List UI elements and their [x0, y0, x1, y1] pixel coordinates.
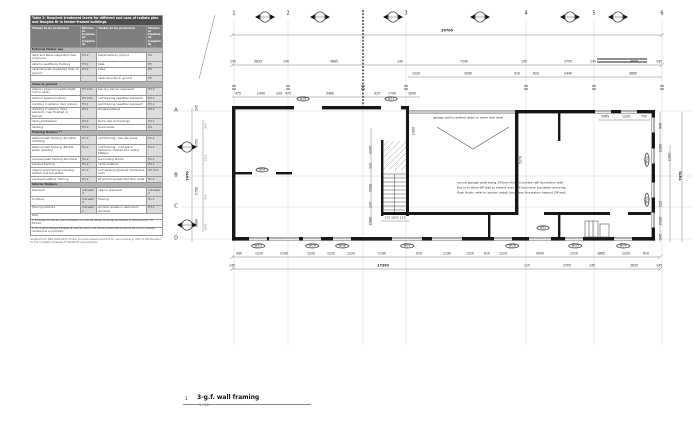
- dim-label: 115: [524, 264, 530, 267]
- note-sip-1: secure garage walls being 145mm thick. C…: [457, 182, 563, 185]
- view-number: 1: [185, 397, 188, 402]
- dim-label: 1220: [347, 252, 355, 255]
- dim-label: 145: [229, 264, 235, 267]
- dim-label: 1865: [597, 252, 605, 255]
- dim-label: 2105: [369, 146, 372, 154]
- dim-label: 990: [236, 252, 242, 255]
- dim-label: 1165: [668, 153, 671, 161]
- drawing-sheet: Table 2: Required treatment levels for d…: [0, 0, 700, 423]
- section-marker-icon: [383, 12, 403, 22]
- dim-label: 1400: [412, 127, 415, 135]
- dim-label: 2440: [564, 72, 572, 75]
- dim-label: 140: [283, 60, 289, 63]
- dim-label: 3460: [326, 92, 334, 95]
- note-sip-2: this is to allow SIP wall to extend over…: [457, 187, 565, 190]
- dim-label: 910: [514, 72, 520, 75]
- dim-label: 4665: [330, 60, 338, 63]
- section-marker-icon: [310, 12, 330, 22]
- dim-label: 475: [235, 92, 241, 95]
- dim-label: 3090: [464, 72, 472, 75]
- dim-label: 1220: [622, 115, 630, 118]
- window-tag: W08: [335, 243, 349, 248]
- garage-slope-lines: [437, 127, 509, 149]
- dim-label: 600: [205, 194, 208, 199]
- dim-label: 750: [641, 115, 647, 118]
- dim-label: 940: [659, 123, 662, 129]
- dim-label: 1220: [499, 252, 507, 255]
- dim-label: 1790: [388, 92, 396, 95]
- dim-label: 3635: [630, 60, 638, 63]
- view-title: 3-g.f. wall framing: [197, 394, 259, 401]
- section-marker-icon: [470, 12, 490, 22]
- dim-label: 2190: [378, 252, 386, 255]
- window-tag: W04: [616, 243, 630, 248]
- dim-label: 1100: [659, 144, 662, 152]
- dim-label: 1220: [622, 252, 630, 255]
- walls: [232, 106, 655, 241]
- fixtures: [585, 221, 609, 237]
- grid-lines: [182, 20, 692, 345]
- dim-label: 3635: [630, 264, 638, 267]
- dim-label: 910: [416, 252, 422, 255]
- dim-overall-width: 24700: [441, 29, 453, 32]
- grid-col-1: 1: [232, 12, 235, 17]
- dim-label: 145: [590, 60, 596, 63]
- dim-label: 7470: [679, 171, 682, 180]
- dim-label: 7470: [186, 171, 189, 180]
- window-tag: W09: [305, 243, 319, 248]
- dim-label: 145: [656, 60, 662, 63]
- dim-label: 610: [484, 252, 490, 255]
- grid-col-3: 3: [404, 12, 407, 17]
- dim-label: 7240: [460, 60, 468, 63]
- dim-label: 1220: [412, 72, 420, 75]
- dim-label: 115: [369, 202, 372, 208]
- dim-label: 145: [230, 60, 236, 63]
- section-marker-icon: [608, 12, 628, 22]
- dim-label: 2440: [257, 92, 265, 95]
- window-tag: W07: [400, 243, 414, 248]
- note-sip-3: flush finish; refer to section detail; b…: [457, 192, 566, 195]
- dimension-lines: [192, 33, 682, 271]
- grid-row-a: A: [174, 109, 177, 114]
- dim-label: 145: [659, 234, 662, 240]
- view-title-underline: [183, 404, 311, 405]
- window-tag: W10: [251, 243, 265, 248]
- dim-label: 4000: [536, 252, 544, 255]
- dim-label: 1495: [205, 223, 208, 230]
- dim-label: 610: [643, 252, 649, 255]
- dim-label: 2190: [443, 252, 451, 255]
- dim-label: 145: [656, 264, 662, 267]
- bottom-windows: [249, 236, 632, 241]
- window-tag: W06: [505, 243, 519, 248]
- dim-label: 3705: [195, 139, 198, 147]
- dim-label: 3500: [369, 184, 372, 192]
- dim-label: 1065: [601, 115, 609, 118]
- dim-label: 820: [533, 72, 539, 75]
- dim-label: 115: [659, 201, 662, 207]
- grid-col-6: 6: [660, 12, 663, 17]
- dim-label: 1220: [327, 252, 335, 255]
- grid-row-b: B: [174, 174, 177, 179]
- dim-label: 145: [521, 60, 527, 63]
- dim-label: 1560: [369, 217, 372, 225]
- section-marker-icon: [560, 12, 580, 22]
- dim-label: 475: [285, 92, 291, 95]
- note-garage-wall: garage wall to extend down to lower slab…: [433, 117, 503, 120]
- dim-label: 1790: [195, 187, 198, 195]
- dim-label: 1640: [408, 92, 416, 95]
- section-marker-icon: [255, 12, 275, 22]
- grid-col-5: 5: [592, 12, 595, 17]
- window-tag: W05: [568, 243, 582, 248]
- staircase: [383, 141, 406, 212]
- dim-label: 3705: [564, 60, 572, 63]
- dim-label: 1860: [195, 219, 198, 227]
- dim-label: 2100: [659, 217, 662, 225]
- dim-label: 115 1620 115: [385, 217, 406, 220]
- dim-label: 3865: [629, 72, 637, 75]
- dim-label: 145: [589, 264, 595, 267]
- dim-label: 2190: [280, 252, 288, 255]
- grid-row-d: D: [174, 237, 178, 242]
- dim-label: 1220: [307, 252, 315, 255]
- dim-label: 230: [276, 92, 282, 95]
- grid-tick-marks: [232, 86, 664, 89]
- dim-label: 140: [397, 60, 403, 63]
- dim-label: 1515: [205, 154, 208, 161]
- dim-label: 1220: [570, 252, 578, 255]
- grid-row-c: C: [174, 205, 178, 210]
- dim-label: 915: [374, 92, 380, 95]
- dim-label: 17390: [377, 264, 389, 267]
- dim-label: 145: [195, 105, 198, 111]
- dim-label: 985: [205, 123, 208, 128]
- leader-line: [199, 15, 215, 79]
- dim-label: 3635: [254, 60, 262, 63]
- dim-label: 115: [369, 163, 372, 169]
- dim-label: 3705: [563, 264, 571, 267]
- grid-col-2: 2: [286, 12, 289, 17]
- grid-col-4: 4: [524, 12, 527, 17]
- dim-label: 1220: [466, 252, 474, 255]
- dim-label: 5170: [519, 156, 522, 164]
- deck-outline: [597, 59, 647, 62]
- dim-label: 1220: [255, 252, 263, 255]
